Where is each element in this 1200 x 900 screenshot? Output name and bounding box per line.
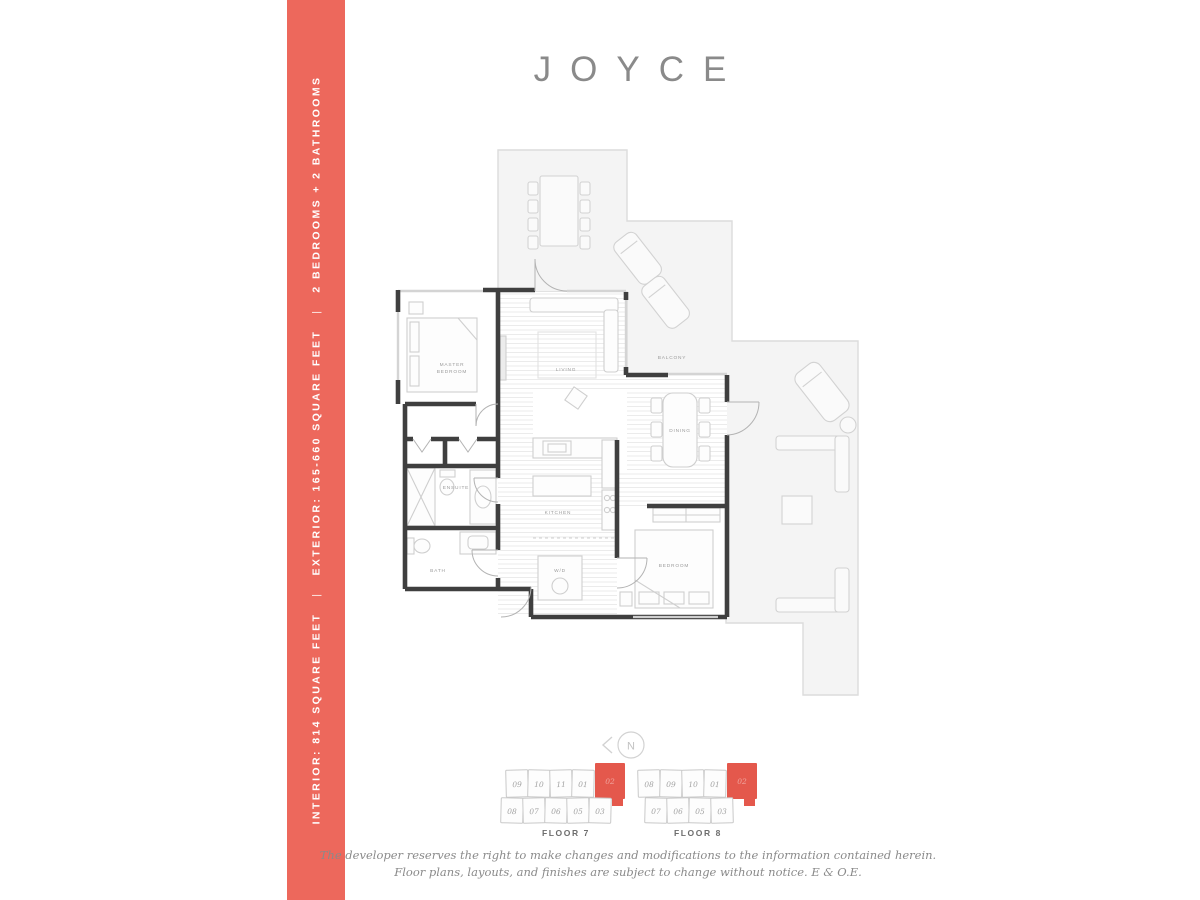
keyplan-unit-number: 09 [512,780,522,789]
brochure-page: INTERIOR: 814 SQUARE FEET|EXTERIOR: 165-… [0,0,1200,900]
room-label-wd: W/D [554,568,566,574]
room-label-master-2: BEDROOM [437,369,467,375]
keyplan-unit: 11 [550,770,573,798]
keyplan-unit: 08 [501,798,524,824]
keyplan-unit: 09 [660,770,683,798]
keyplan-unit: 06 [667,798,690,824]
keyplan-unit-number: 09 [666,780,676,789]
keyplan-unit-number: 05 [695,807,705,816]
keyplan-unit: 06 [545,798,568,824]
floor-plan: MASTER BEDROOM LIVING BALCONY DINING KIT… [380,140,880,710]
room-label-living: LIVING [556,367,577,373]
keyplan-unit: 08 [638,770,661,798]
keyplan-unit: 01 [572,770,595,798]
keyplan-floor-7: 09101101020807060503 [500,760,632,830]
keyplan-unit-number: 02 [605,777,615,786]
floor-8-label: FLOOR 8 [632,828,764,838]
page-title: JOYCE [515,50,746,90]
keyplan-unit: 07 [523,798,546,824]
keyplan-unit: 09 [506,770,529,798]
keyplan-unit-number: 10 [688,780,698,789]
room-label-ensuite: ENSUITE [443,485,469,491]
keyplan-unit: 07 [645,798,668,824]
keyplan-unit: 05 [567,798,590,824]
accent-sidebar [287,0,345,900]
keyplan-unit-number: 03 [717,807,727,816]
keyplan-unit-number: 01 [578,780,588,789]
disclaimer: The developer reserves the right to make… [288,847,968,881]
keyplan-unit-number: 02 [737,777,747,786]
keyplan-unit-number: 10 [534,780,544,789]
keyplan-unit: 03 [711,798,734,824]
keyplan-unit: 03 [589,798,612,824]
keyplan-unit-number: 05 [573,807,583,816]
keyplan-unit-number: 07 [529,807,539,816]
keyplan-unit-number: 11 [556,780,566,789]
keyplan-unit: 01 [704,770,727,798]
keyplan-floor-8: 080910010207060503 [632,760,764,830]
keyplan-unit-number: 08 [507,807,517,816]
floor-7-label: FLOOR 7 [500,828,632,838]
room-label-bedroom: BEDROOM [659,563,689,569]
compass-n-label: N [627,741,635,753]
keyplan-unit-number: 08 [644,780,654,789]
room-label-balcony: BALCONY [658,355,687,361]
north-arrow-icon [603,737,612,753]
disclaimer-line-1: The developer reserves the right to make… [288,847,968,864]
keyplan-unit-number: 01 [710,780,720,789]
disclaimer-line-2: Floor plans, layouts, and finishes are s… [288,864,968,881]
keyplan-unit-number: 06 [551,807,561,816]
keyplan-unit-number: 06 [673,807,683,816]
room-label-dining: DINING [669,428,691,434]
room-label-bath: BATH [430,568,446,574]
keyplan-unit: 05 [689,798,712,824]
keyplan-unit: 10 [682,770,705,798]
keyplan-unit: 10 [528,770,551,798]
room-label-kitchen: KITCHEN [545,510,572,516]
keyplan-unit-number: 07 [651,807,661,816]
keyplan-unit-number: 03 [595,807,605,816]
room-label-master-1: MASTER [440,362,465,368]
